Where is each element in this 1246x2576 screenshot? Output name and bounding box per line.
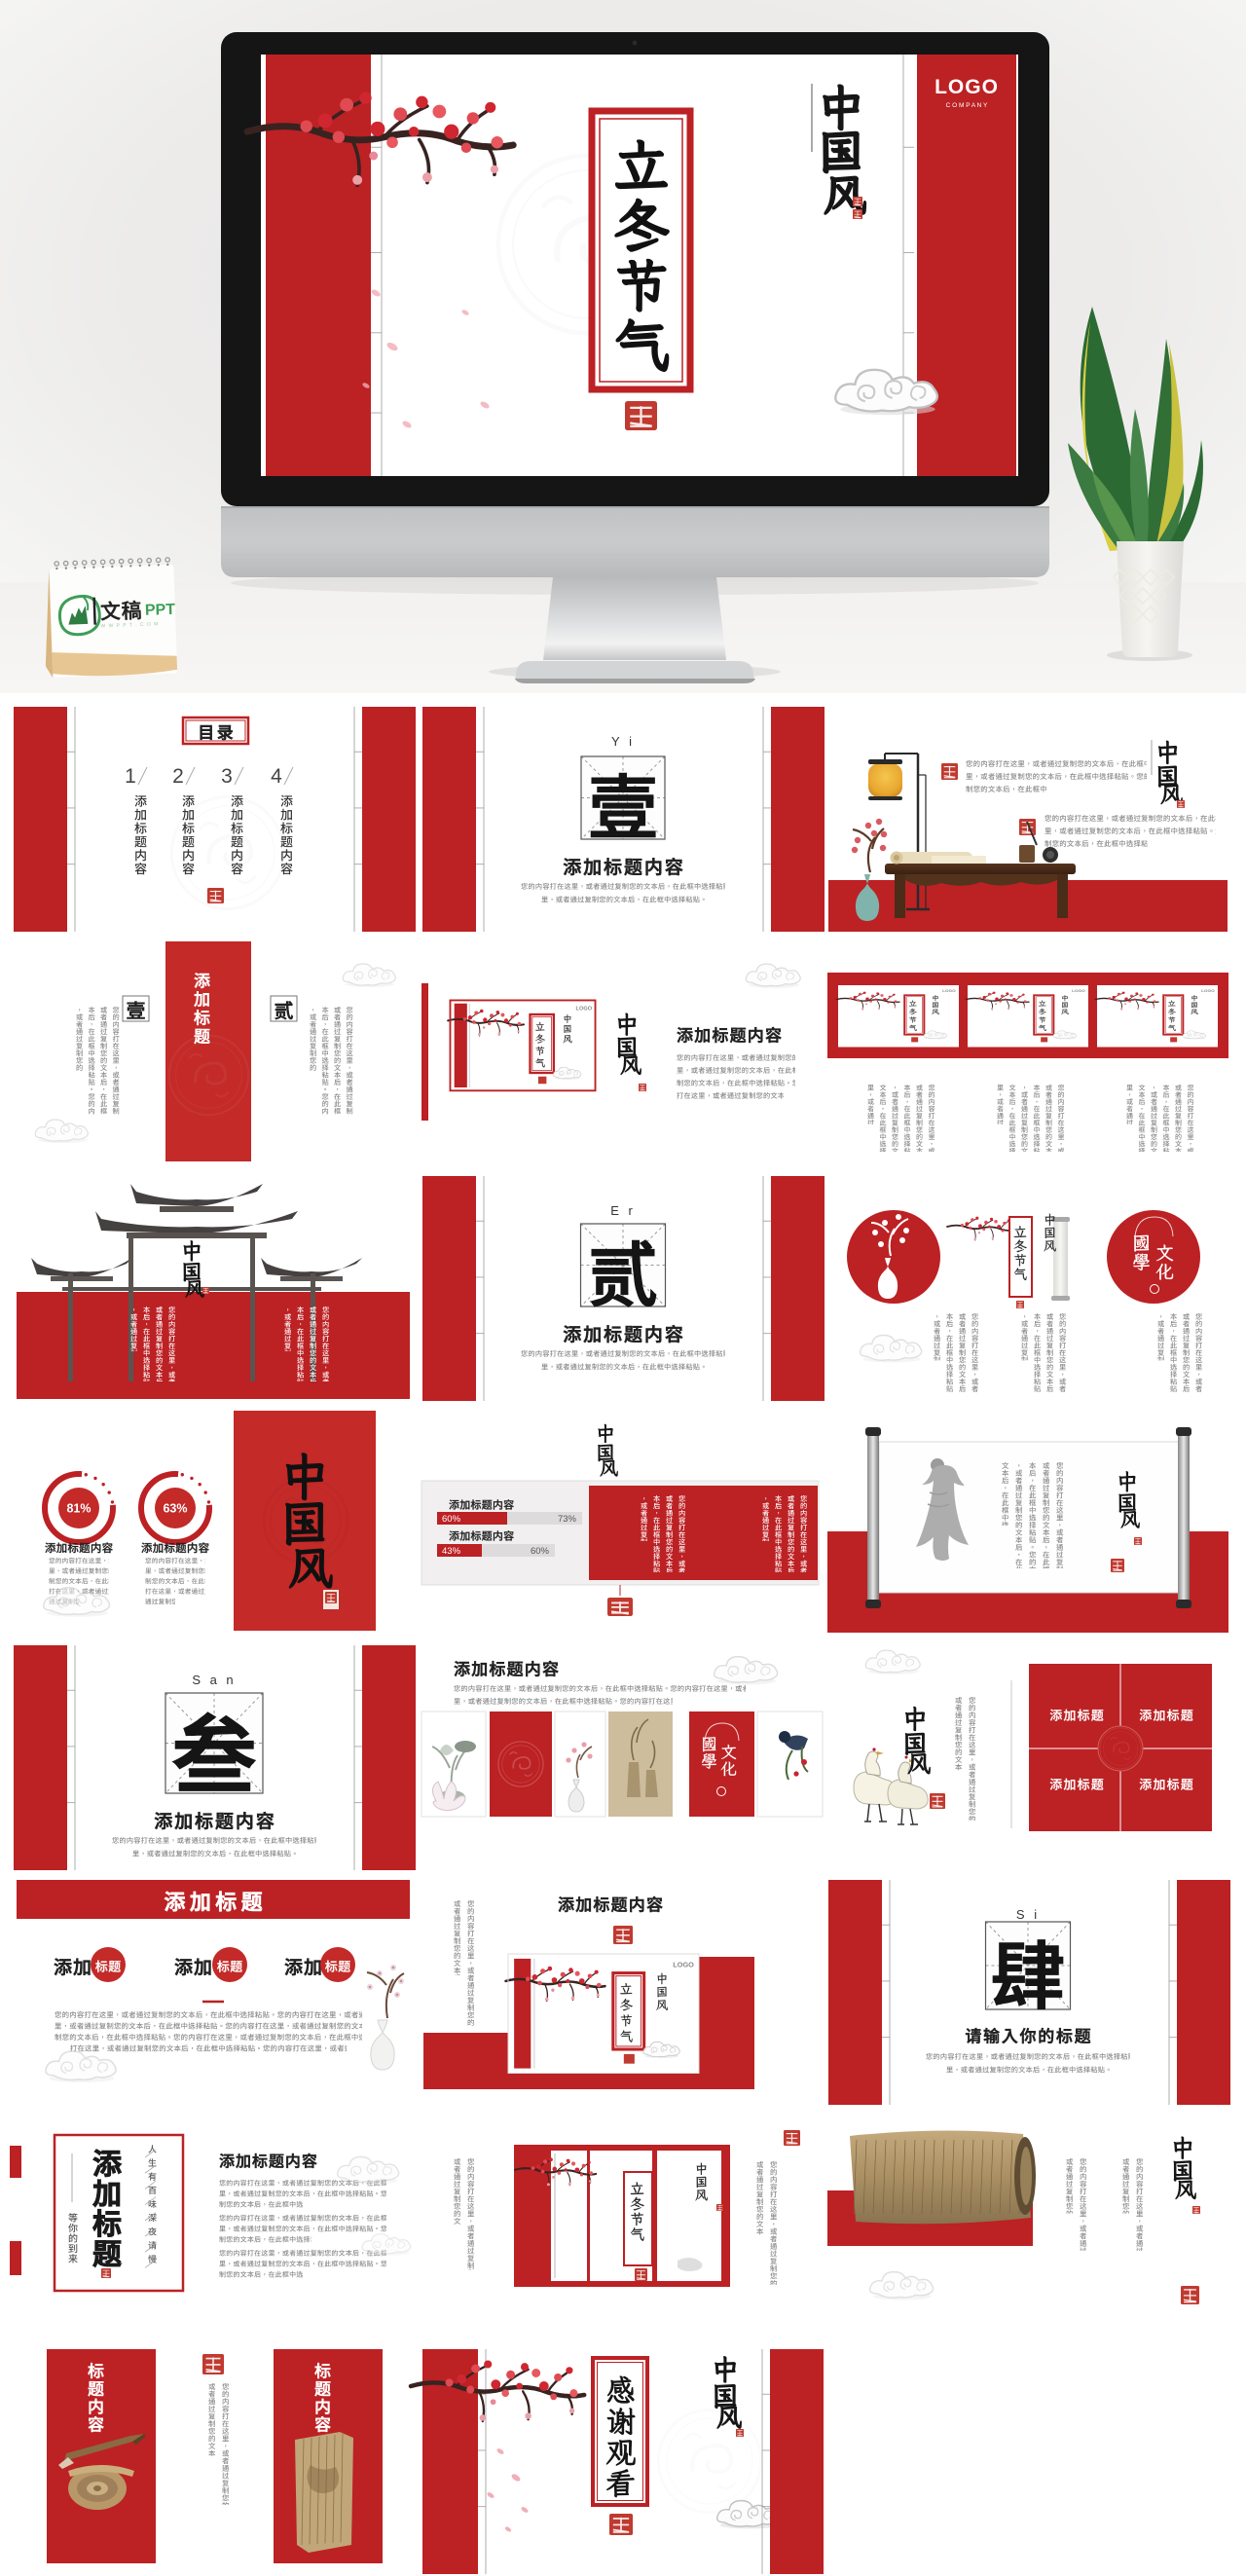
svg-text:60%: 60% xyxy=(442,1514,461,1525)
svg-text:63%: 63% xyxy=(163,1502,187,1516)
svg-text:E r: E r xyxy=(610,1203,636,1218)
svg-text:3: 3 xyxy=(221,765,233,788)
svg-text:1: 1 xyxy=(125,765,136,788)
svg-text:Y i: Y i xyxy=(611,734,635,749)
svg-text:S a n: S a n xyxy=(192,1673,236,1687)
svg-text:4: 4 xyxy=(271,765,282,788)
svg-text:PPT: PPT xyxy=(145,602,176,619)
svg-text:S i: S i xyxy=(1016,1907,1040,1922)
svg-text:60%: 60% xyxy=(531,1546,550,1557)
svg-text:73%: 73% xyxy=(558,1514,577,1525)
svg-text:2: 2 xyxy=(172,765,184,788)
svg-text:81%: 81% xyxy=(66,1502,91,1516)
svg-text:43%: 43% xyxy=(442,1546,461,1557)
svg-text:LOGO: LOGO xyxy=(934,76,999,98)
svg-text:C O M P A N Y: C O M P A N Y xyxy=(946,102,988,109)
